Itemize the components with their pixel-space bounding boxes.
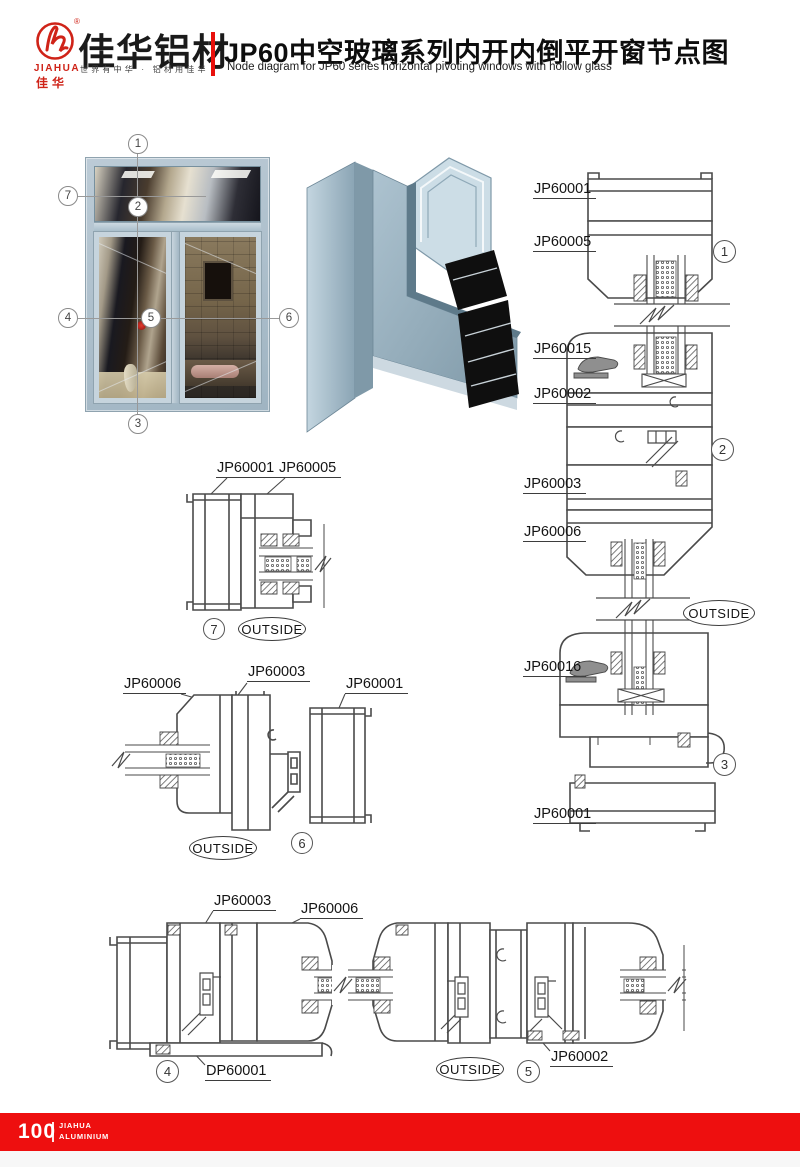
jiahua-logo-icon <box>36 20 78 64</box>
footer-separator <box>52 1122 54 1142</box>
footer-brand: JIAHUA ALUMINIUM <box>59 1121 109 1143</box>
part-label: JP60003 <box>247 664 310 682</box>
footer-brand-line2: ALUMINIUM <box>59 1132 109 1143</box>
part-label: JP60003 <box>213 893 276 911</box>
open-direction-line <box>99 243 171 313</box>
part-label: JP60002 <box>533 386 596 404</box>
part-label: JP60001 <box>533 806 596 824</box>
section-callout-1: 1 <box>713 240 736 263</box>
footer-strip <box>0 1151 800 1167</box>
header: ® JIAHUA 佳华 佳华铝材 世界有中华 · 铝材用佳华 JP60中空玻璃系… <box>0 0 800 95</box>
outside-label: OUTSIDE <box>683 600 755 626</box>
corner-profile-render <box>295 146 527 436</box>
page-number: 100 <box>18 1120 56 1144</box>
callout-line-vertical <box>137 154 138 424</box>
part-label: JP60016 <box>523 659 586 677</box>
part-label: JP60005 <box>533 234 596 252</box>
part-label: JP60002 <box>550 1049 613 1067</box>
part-label: JP60006 <box>523 524 586 542</box>
logo-brand-cn-small: 佳华 <box>36 74 68 91</box>
glass-panes <box>413 158 491 270</box>
brand-tagline: 世界有中华 · 铝材用佳华 <box>80 64 209 75</box>
outside-label: OUTSIDE <box>436 1057 504 1081</box>
part-label: JP60005 <box>278 460 341 478</box>
part-label: JP60003 <box>523 476 586 494</box>
window-callout-2: 2 <box>128 197 148 217</box>
window-callout-5: 5 <box>141 308 161 328</box>
vertical-section-drawing <box>530 165 795 845</box>
part-label: JP60015 <box>533 341 596 359</box>
detail-5-callout: 5 <box>517 1060 540 1083</box>
window-callout-4: 4 <box>58 308 78 328</box>
ceiling-light <box>121 171 155 178</box>
leaders <box>211 478 285 494</box>
ceiling-light <box>211 170 251 178</box>
detail-6-drawing <box>108 666 413 861</box>
section-callout-2: 2 <box>711 438 734 461</box>
page-subtitle: Node diagram for JP60 series horizontal … <box>227 61 612 73</box>
callout-line-456 <box>78 318 290 319</box>
catalog-page: ® JIAHUA 佳华 佳华铝材 世界有中华 · 铝材用佳华 JP60中空玻璃系… <box>0 0 800 1167</box>
outside-label: OUTSIDE <box>238 617 306 641</box>
detail-6-callout: 6 <box>291 832 313 854</box>
detail-4-callout: 4 <box>156 1060 179 1083</box>
detail-7-callout: 7 <box>203 618 225 640</box>
artwork <box>205 263 231 299</box>
header-divider <box>211 32 215 76</box>
window-callout-7: 7 <box>58 186 78 206</box>
section-callout-3: 3 <box>713 753 736 776</box>
transom-glass <box>94 166 261 222</box>
part-label: DP60001 <box>205 1063 271 1081</box>
footer-brand-line1: JIAHUA <box>59 1121 109 1132</box>
part-label: JP60006 <box>300 901 363 919</box>
transom-bar <box>94 222 261 232</box>
part-label: JP60006 <box>123 676 186 694</box>
glass-run-1 <box>302 957 393 1013</box>
outside-label: OUTSIDE <box>189 836 257 860</box>
part-label: JP60001 <box>216 460 279 478</box>
window-callout-1: 1 <box>128 134 148 154</box>
window-callout-3: 3 <box>128 414 148 434</box>
part-label: JP60001 <box>533 181 596 199</box>
part-label: JP60001 <box>345 676 408 694</box>
footer-bar: 100 JIAHUA ALUMINIUM <box>0 1113 800 1151</box>
horizontal-section-drawing <box>80 893 795 1090</box>
profiles <box>560 173 724 831</box>
